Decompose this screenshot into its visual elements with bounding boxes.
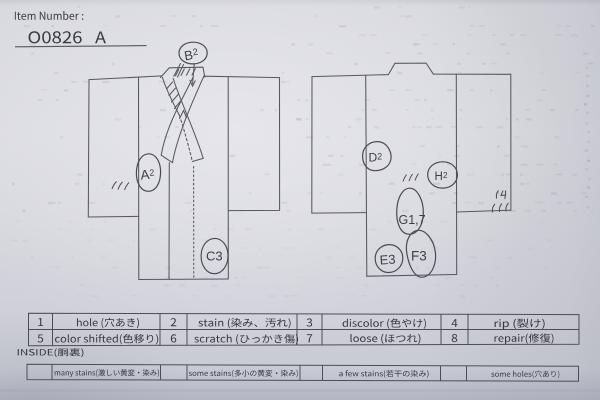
svg-text:H2: H2 bbox=[435, 170, 448, 183]
svg-text:A2: A2 bbox=[140, 166, 155, 182]
svg-text:E3: E3 bbox=[379, 252, 396, 268]
svg-text:D2: D2 bbox=[369, 151, 383, 165]
svg-text:F3: F3 bbox=[411, 249, 427, 264]
svg-text:B2: B2 bbox=[183, 46, 199, 63]
svg-text:G1,7: G1,7 bbox=[399, 213, 426, 227]
svg-text:C3: C3 bbox=[206, 249, 223, 264]
